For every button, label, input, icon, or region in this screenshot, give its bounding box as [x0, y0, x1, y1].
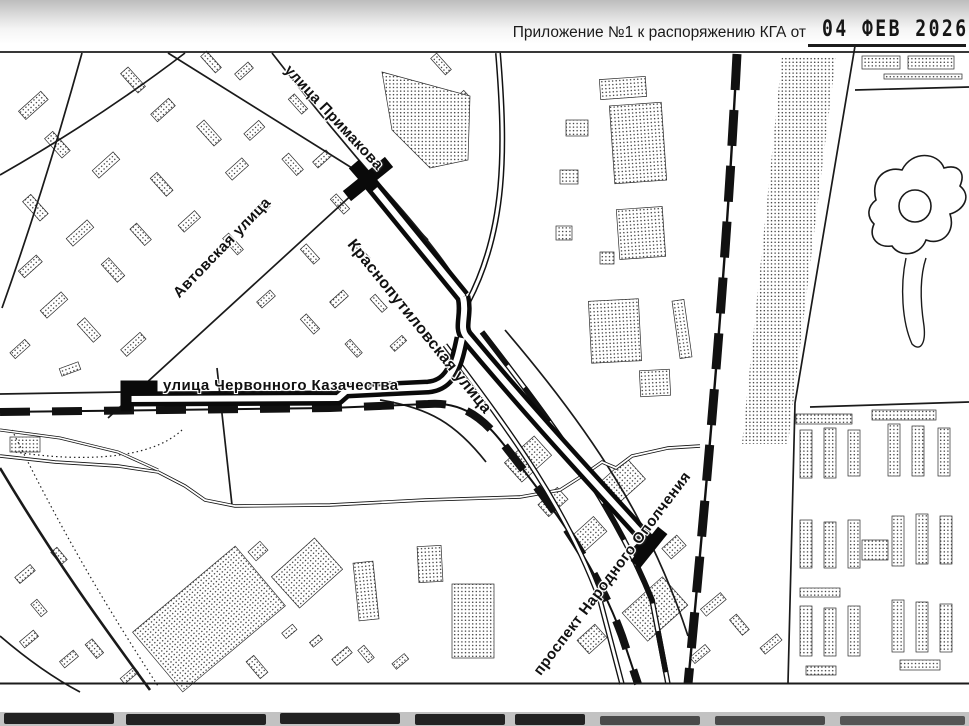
date-underline — [808, 44, 966, 47]
scanned-map-page: Приложение №1 к распоряжению КГА от 04 Ф… — [0, 0, 969, 726]
building-footprints — [10, 51, 962, 692]
date-stamp: 04 ФЕВ 2026 — [822, 17, 969, 42]
document-header: Приложение №1 к распоряжению КГА от — [513, 24, 806, 42]
pond-outline — [869, 156, 966, 348]
city-map — [0, 0, 969, 726]
railway-main — [688, 54, 737, 684]
